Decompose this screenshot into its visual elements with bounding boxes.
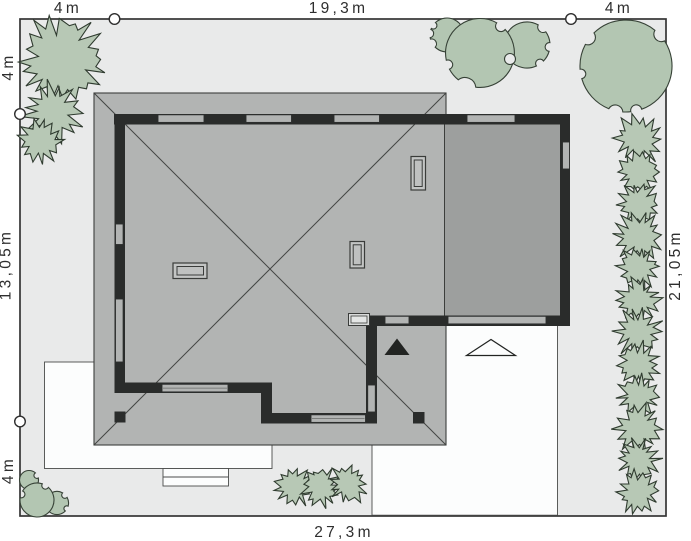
svg-text:4m: 4m [605,0,633,17]
svg-text:19,3m: 19,3m [309,0,369,17]
svg-text:13,05m: 13,05m [0,229,15,301]
svg-text:4m: 4m [0,52,17,80]
svg-text:4m: 4m [0,456,17,484]
svg-text:21,05m: 21,05m [667,229,684,301]
svg-text:27,3m: 27,3m [314,524,374,541]
svg-text:4m: 4m [54,0,82,17]
